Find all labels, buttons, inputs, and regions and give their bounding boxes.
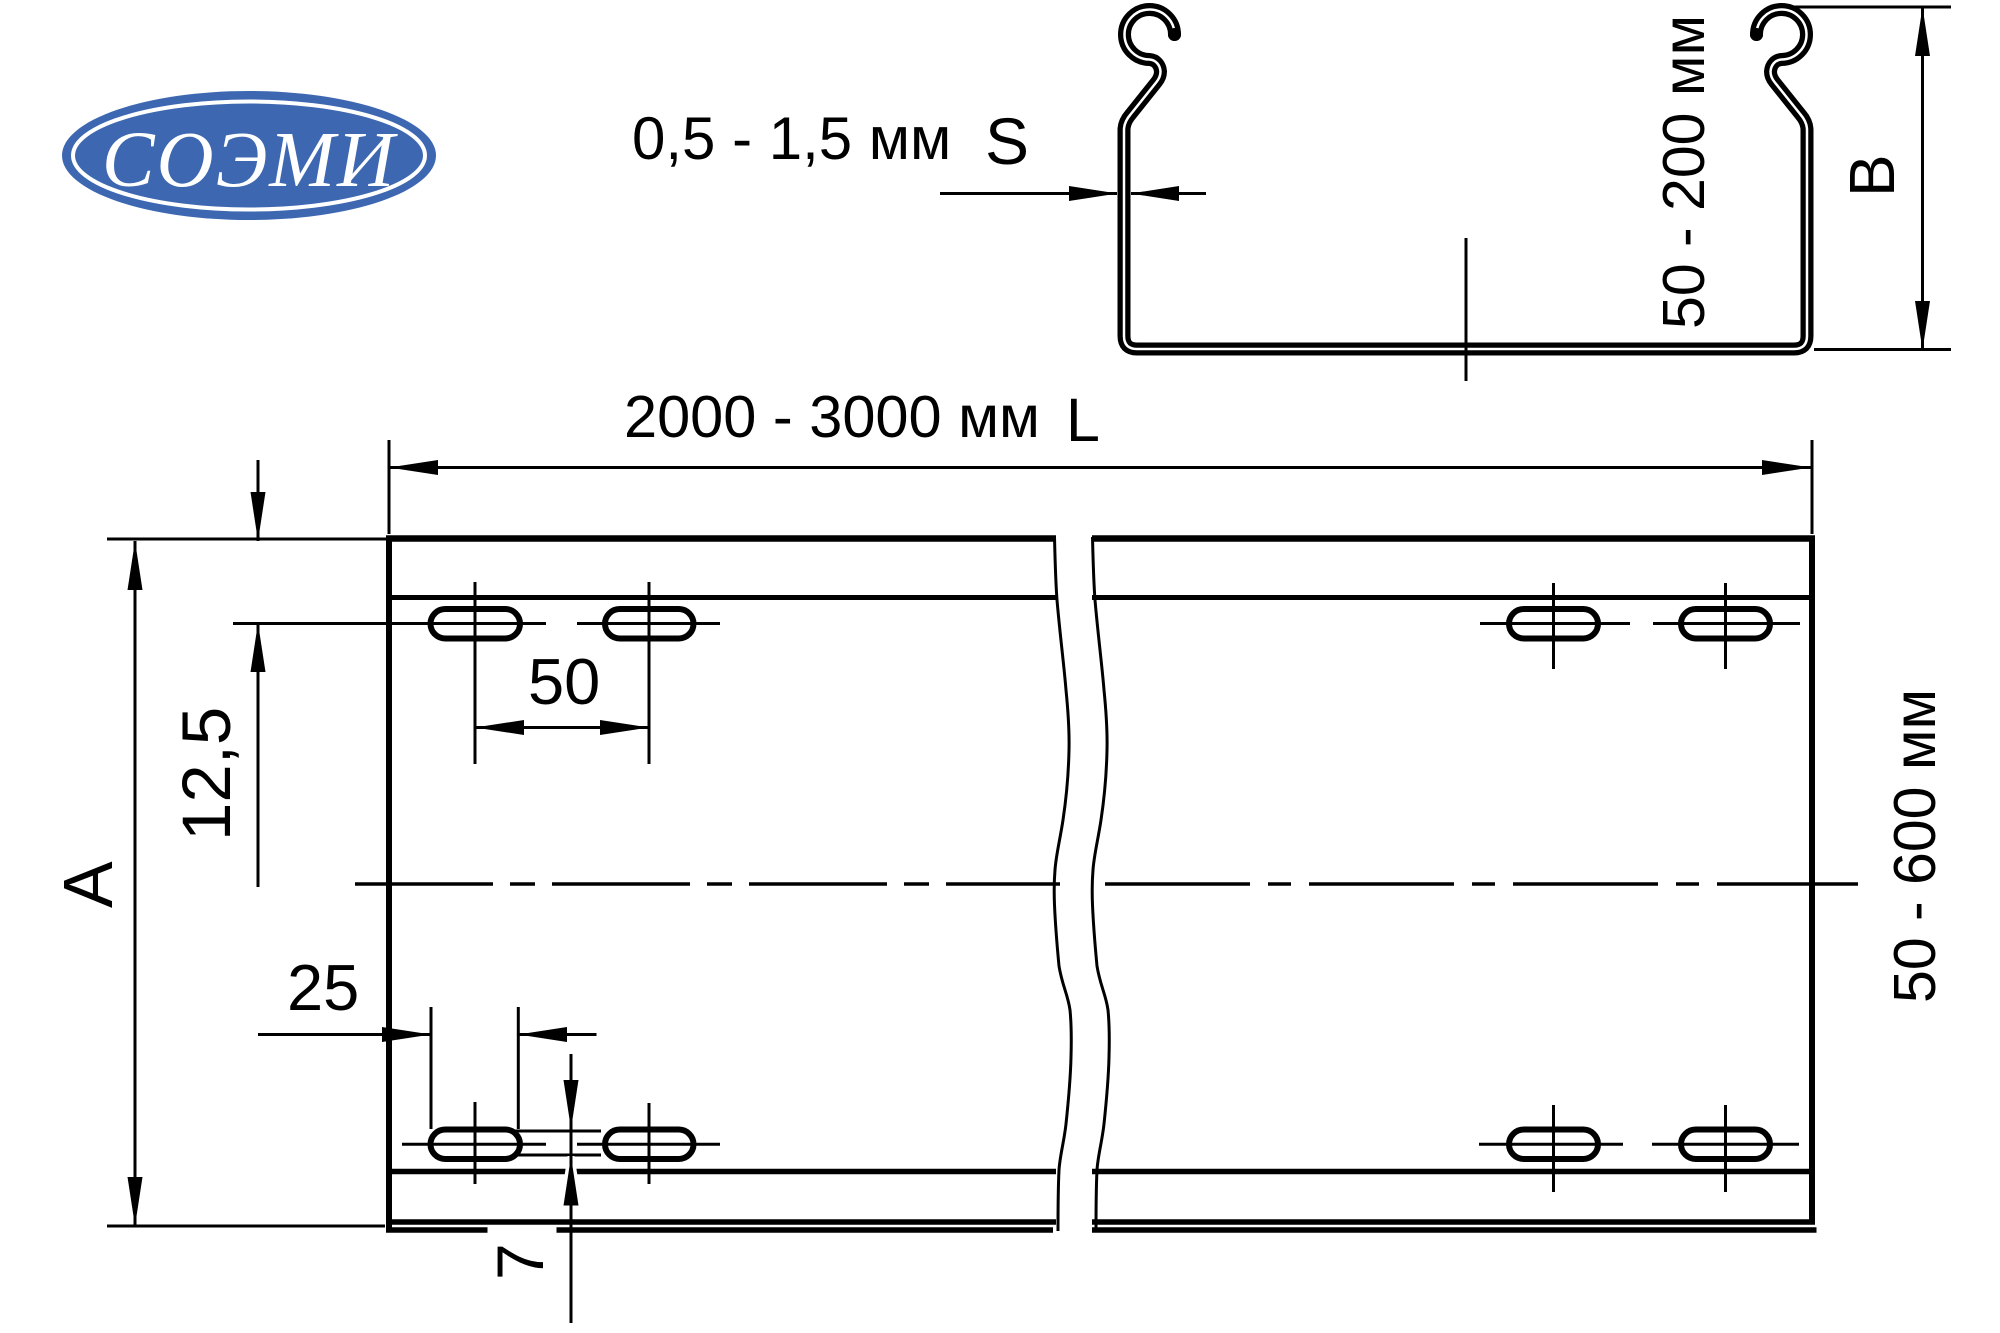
svg-text:S: S: [985, 104, 1029, 178]
svg-text:A: A: [49, 861, 127, 908]
svg-text:7: 7: [483, 1243, 557, 1280]
svg-text:B: B: [1836, 154, 1908, 197]
svg-text:50 - 600 мм: 50 - 600 мм: [1882, 689, 1948, 1003]
svg-text:0,5 - 1,5 мм: 0,5 - 1,5 мм: [632, 105, 951, 172]
svg-text:2000 - 3000 мм: 2000 - 3000 мм: [624, 383, 1040, 450]
svg-text:50 - 200 мм: 50 - 200 мм: [1651, 15, 1717, 329]
svg-text:50: 50: [528, 645, 600, 718]
svg-text:25: 25: [287, 951, 359, 1024]
svg-text:L: L: [1066, 386, 1100, 454]
svg-text:12,5: 12,5: [168, 707, 245, 841]
svg-text:СОЭМИ: СОЭМИ: [102, 117, 398, 204]
